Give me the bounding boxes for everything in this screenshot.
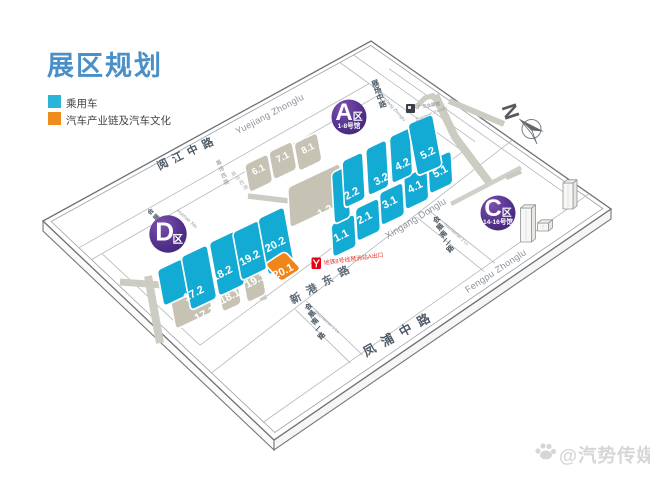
svg-text:D: D [155, 217, 174, 247]
svg-text:14-16号馆: 14-16号馆 [483, 217, 513, 226]
svg-text:区: 区 [172, 233, 183, 245]
svg-text:区: 区 [353, 111, 363, 123]
svg-text:1-8号馆: 1-8号馆 [338, 121, 361, 130]
svg-text:N: N [497, 101, 524, 123]
svg-text:@汽势传媒: @汽势传媒 [559, 445, 650, 466]
svg-text:区: 区 [502, 207, 512, 219]
